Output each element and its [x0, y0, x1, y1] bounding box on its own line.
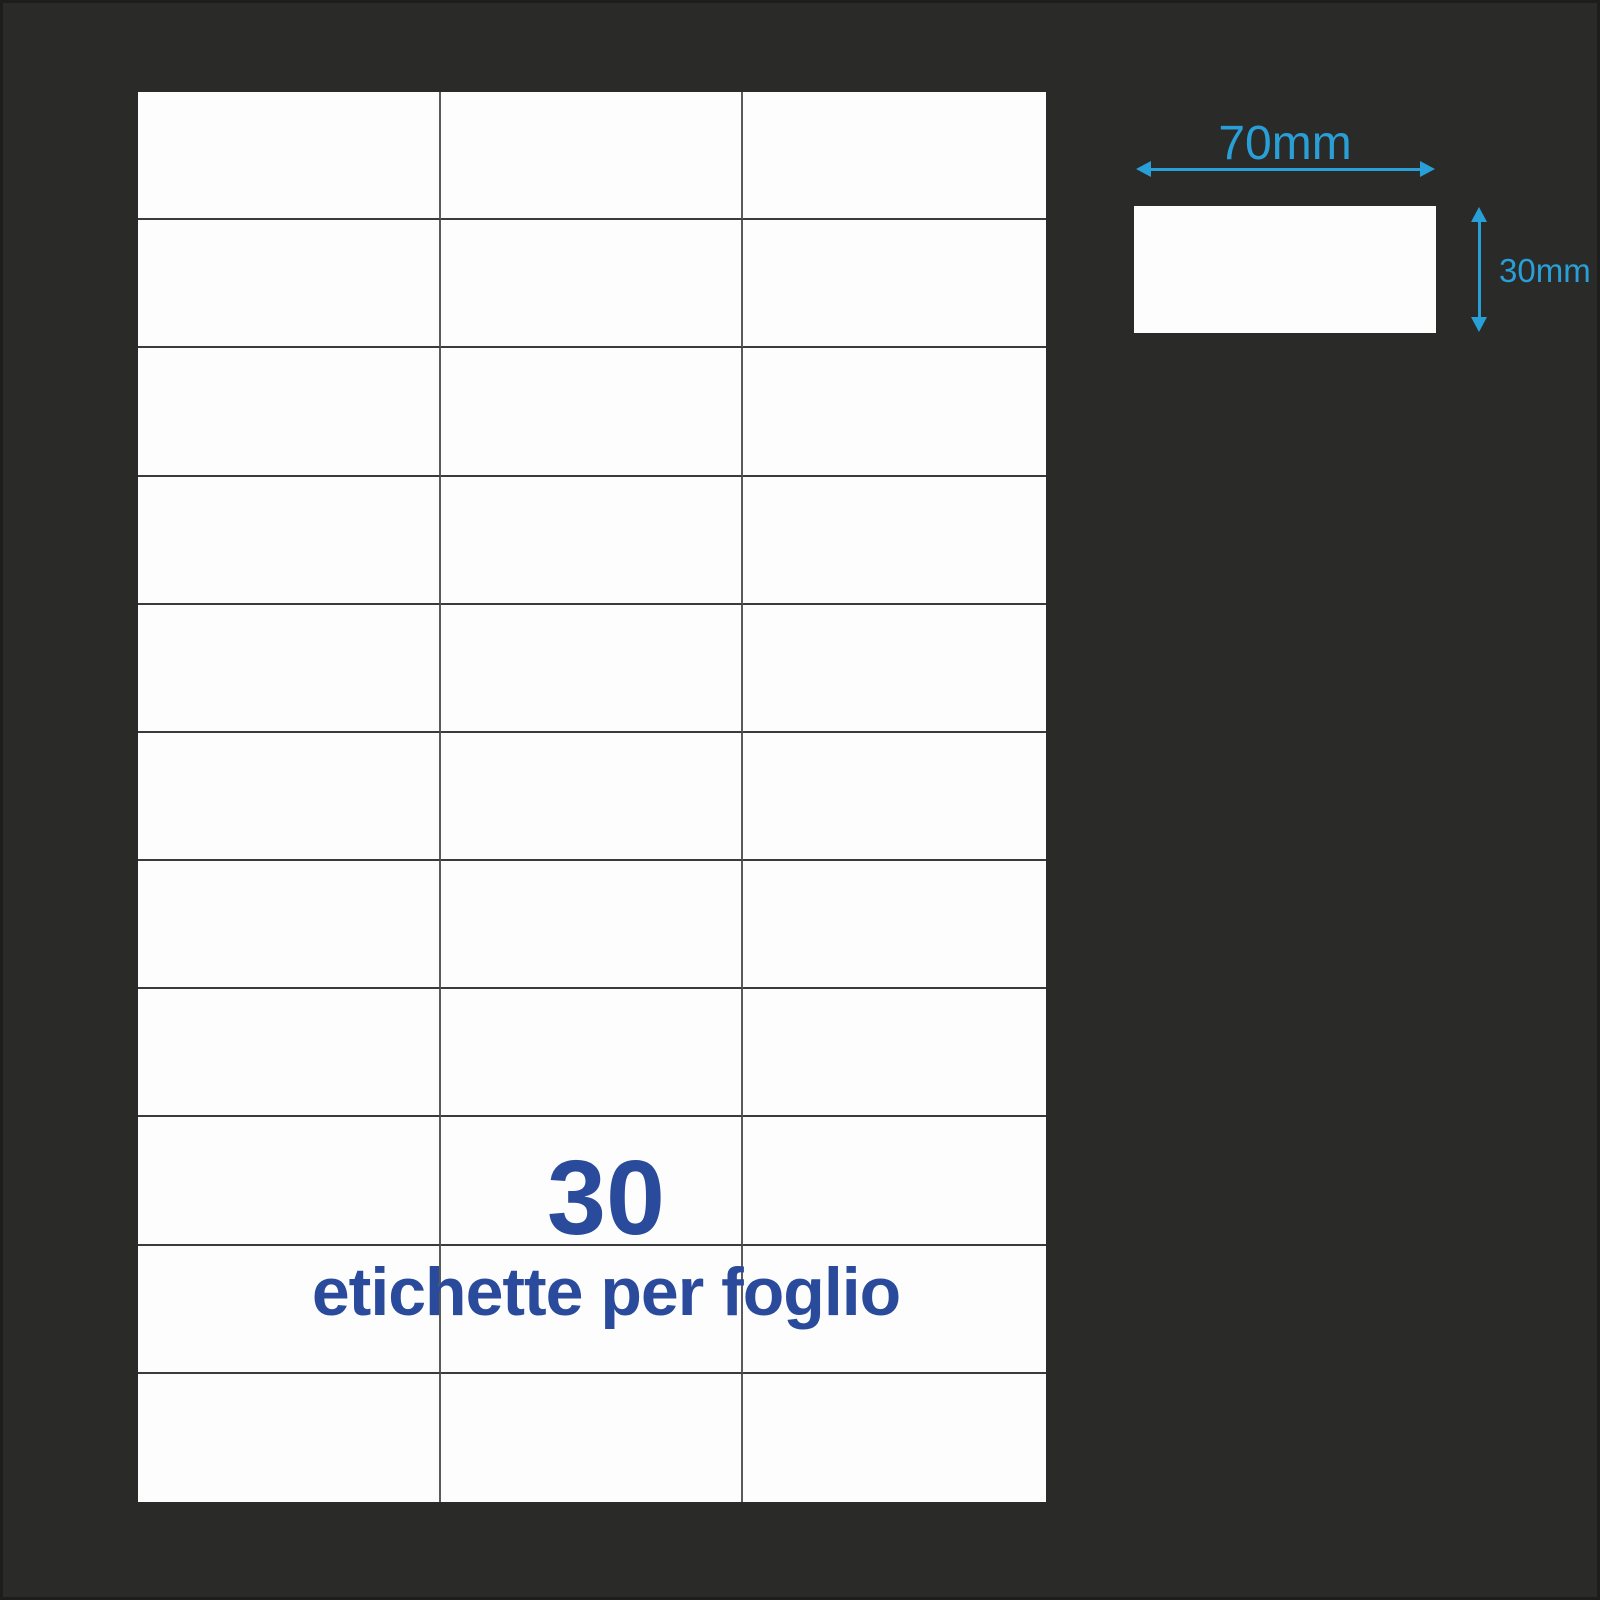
label-cell — [138, 605, 441, 733]
arrow-right-icon — [1420, 161, 1435, 177]
labels-per-sheet-caption: etichette per foglio — [152, 1258, 1060, 1326]
arrow-line — [1144, 168, 1427, 171]
label-sheet: 30 etichette per foglio — [138, 92, 1046, 1502]
label-cell — [743, 477, 1046, 605]
product-image: 30 etichette per foglio 70mm 30mm — [0, 0, 1600, 1600]
label-cell — [138, 989, 441, 1117]
label-cell — [743, 605, 1046, 733]
labels-per-sheet-count: 30 — [152, 1145, 1060, 1251]
arrow-line — [1478, 215, 1481, 324]
label-cell — [441, 92, 744, 220]
label-cell — [441, 477, 744, 605]
label-cell — [441, 605, 744, 733]
arrow-down-icon — [1471, 317, 1487, 332]
label-cell — [743, 1374, 1046, 1502]
label-cell — [743, 989, 1046, 1117]
label-cell — [743, 733, 1046, 861]
sample-label — [1134, 206, 1436, 333]
label-cell — [138, 348, 441, 476]
label-cell — [441, 220, 744, 348]
label-cell — [441, 1374, 744, 1502]
label-cell — [138, 1374, 441, 1502]
width-dimension-arrow — [1136, 160, 1435, 178]
label-cell — [138, 92, 441, 220]
label-cell — [441, 348, 744, 476]
label-cell — [138, 733, 441, 861]
height-dimension-label: 30mm — [1499, 254, 1591, 287]
height-dimension-arrow — [1470, 207, 1488, 332]
label-cell — [441, 733, 744, 861]
label-cell — [138, 220, 441, 348]
label-cell — [138, 477, 441, 605]
label-cell — [441, 861, 744, 989]
label-cell — [743, 348, 1046, 476]
label-cell — [138, 861, 441, 989]
label-cell — [441, 989, 744, 1117]
label-cell — [743, 92, 1046, 220]
label-cell — [743, 220, 1046, 348]
label-cell — [743, 861, 1046, 989]
